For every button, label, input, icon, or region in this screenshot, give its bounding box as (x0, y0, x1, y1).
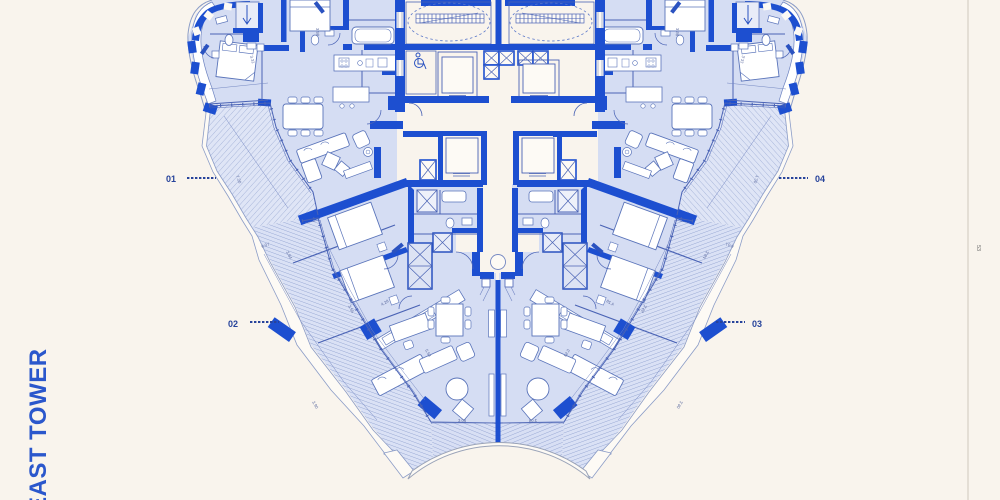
svg-text:03: 03 (752, 319, 762, 329)
svg-text:02: 02 (228, 319, 238, 329)
svg-text:53: 53 (975, 245, 981, 251)
svg-text:04: 04 (815, 174, 825, 184)
svg-text:EAST TOWER: EAST TOWER (25, 348, 52, 500)
svg-text:01: 01 (166, 174, 176, 184)
svg-text:3.06: 3.06 (458, 418, 467, 423)
svg-text:3.98: 3.98 (315, 28, 320, 37)
